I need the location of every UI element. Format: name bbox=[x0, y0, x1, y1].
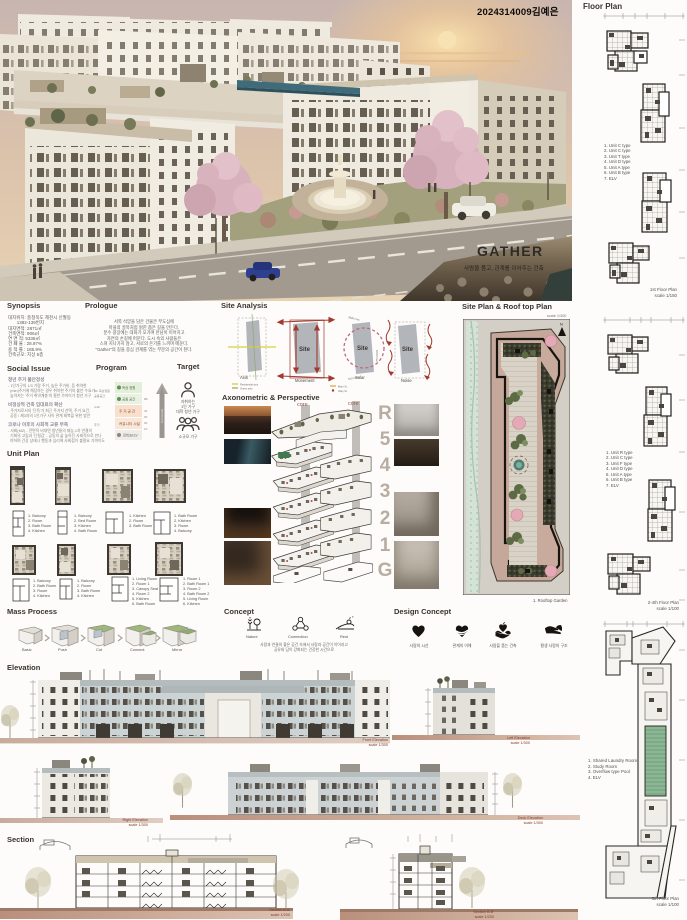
svg-text:Community: Community bbox=[160, 408, 164, 423]
svg-text:로비&ELV: 로비&ELV bbox=[123, 433, 138, 438]
svg-text:GATHER: GATHER bbox=[477, 243, 543, 259]
svg-text:커뮤니티 시설: 커뮤니티 시설 bbox=[119, 421, 140, 426]
svg-text:Main St.: Main St. bbox=[338, 385, 348, 389]
svg-text:Site: Site bbox=[357, 346, 369, 352]
svg-text:옥상 정원: 옥상 정원 bbox=[122, 385, 135, 390]
svg-text:4-2F: 4-2F bbox=[94, 405, 100, 409]
svg-text:주 거 공 간: 주 거 공 간 bbox=[119, 409, 136, 414]
svg-text:공용공간: 공용공간 bbox=[94, 393, 105, 398]
svg-text:Site: Site bbox=[299, 347, 311, 353]
svg-text:주거: 주거 bbox=[94, 422, 100, 427]
svg-text:2F: 2F bbox=[144, 421, 148, 425]
svg-text:z: z bbox=[352, 615, 354, 619]
svg-text:공용 공간: 공용 공간 bbox=[122, 397, 135, 402]
svg-text:4F: 4F bbox=[144, 409, 148, 413]
svg-text:RF 옥상정원: RF 옥상정원 bbox=[94, 388, 110, 393]
svg-text:Site: Site bbox=[402, 347, 414, 353]
svg-text:z: z bbox=[349, 615, 351, 620]
svg-text:RF: RF bbox=[144, 397, 148, 401]
svg-text:사람을 품고, 관계를 이어주는 건축: 사람을 품고, 관계를 이어주는 건축 bbox=[464, 264, 544, 272]
svg-text:Residential axis: Residential axis bbox=[240, 383, 259, 387]
svg-text:1F: 1F bbox=[144, 427, 148, 431]
svg-text:3F: 3F bbox=[144, 415, 148, 419]
svg-text:3000 Free: 3000 Free bbox=[348, 315, 361, 322]
svg-text:6000 Free: 6000 Free bbox=[375, 350, 379, 362]
svg-text:N: N bbox=[560, 323, 563, 327]
